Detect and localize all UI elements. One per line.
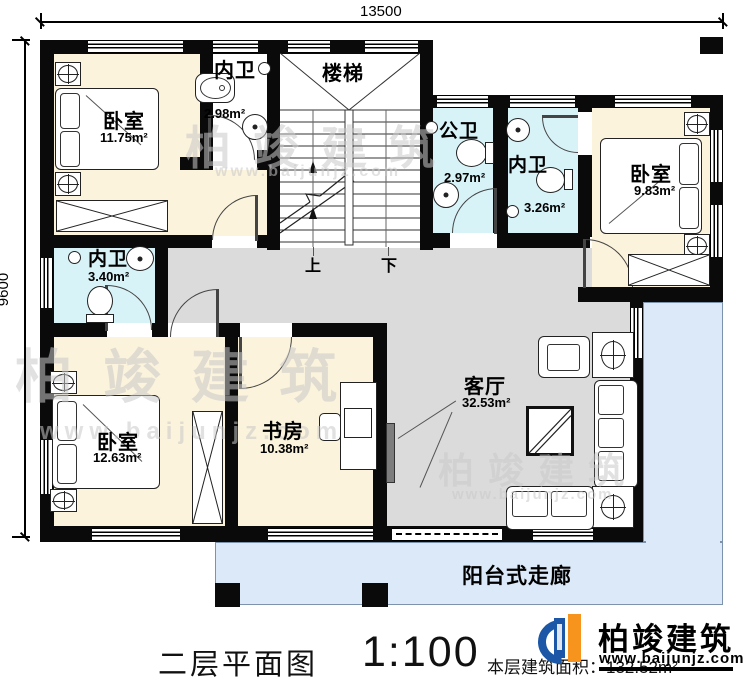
wall-segment xyxy=(152,323,168,337)
logo-underline xyxy=(599,667,733,671)
bath-right-area: 3.26m² xyxy=(524,200,565,215)
window xyxy=(510,95,575,108)
window xyxy=(40,258,53,308)
wall-segment xyxy=(497,233,590,248)
window xyxy=(615,95,691,108)
bedroom-tl-door xyxy=(255,195,258,241)
wall-segment xyxy=(578,95,592,112)
wall-segment xyxy=(225,323,240,337)
bath-left-area: 3.40m² xyxy=(88,269,129,284)
tv-cabinet xyxy=(386,423,395,483)
wall-segment xyxy=(40,323,107,337)
chair xyxy=(319,413,341,441)
public-bath-door xyxy=(494,188,497,234)
balcony-pillar xyxy=(362,583,388,607)
bath-left-label: 内卫 xyxy=(88,244,128,271)
nightstand xyxy=(55,172,81,196)
nightstand xyxy=(50,371,77,394)
dimension-ext xyxy=(722,13,724,29)
window xyxy=(92,528,180,541)
wardrobe xyxy=(192,411,223,524)
side-table xyxy=(592,486,634,528)
logo-url: www.baijunjz.com xyxy=(599,650,744,667)
bedroom-tl-area: 11.75m² xyxy=(100,130,148,145)
armchair xyxy=(538,336,590,378)
toilet-icon xyxy=(86,286,114,324)
stairs-label: 楼梯 xyxy=(322,57,364,86)
side-table xyxy=(592,332,634,378)
coffee-table xyxy=(526,406,574,456)
sliding-door xyxy=(392,528,502,541)
dimension-ext xyxy=(12,536,30,538)
window xyxy=(268,528,373,541)
living-area: 32.53m² xyxy=(462,395,510,410)
window xyxy=(365,40,418,53)
monitor xyxy=(344,408,372,438)
wardrobe xyxy=(628,254,710,286)
window xyxy=(710,130,723,182)
public-bath-label: 公卫 xyxy=(439,116,479,143)
window xyxy=(288,40,330,53)
sofa-three-seat xyxy=(594,380,638,488)
wall-segment xyxy=(578,287,723,302)
nightstand xyxy=(684,112,710,136)
dimension-top-value: 13500 xyxy=(360,3,402,20)
bedroom-bl-door xyxy=(216,289,219,337)
study-area: 10.38m² xyxy=(260,441,308,456)
sink-icon xyxy=(506,118,530,142)
nightstand xyxy=(55,62,81,86)
balcony-label: 阳台式走廊 xyxy=(462,560,572,590)
balcony-seam xyxy=(646,540,720,546)
dimension-ext xyxy=(12,39,30,41)
wall-segment xyxy=(578,155,592,237)
leader-dot xyxy=(68,251,81,264)
floor-plan: 柏竣建筑 www.baijunjz.com 柏竣建筑 www.baijunjz.… xyxy=(0,0,750,684)
study-label: 书房 xyxy=(262,415,304,444)
balcony-right xyxy=(643,302,723,542)
bath-tl-area: 2.98m² xyxy=(204,106,245,121)
stair-up-label: 上 xyxy=(305,252,322,276)
wall-segment xyxy=(433,233,450,248)
bath-tl-door xyxy=(208,115,211,161)
dimension-line-left xyxy=(24,40,26,537)
dimension-line-top xyxy=(40,21,723,23)
bath-right-label: 内卫 xyxy=(508,150,548,177)
sink-icon xyxy=(242,114,268,140)
window xyxy=(88,40,183,53)
logo-building-icon xyxy=(538,612,596,668)
public-bath-area: 2.97m² xyxy=(444,170,485,185)
bedroom-r-area: 9.83m² xyxy=(634,183,675,198)
stair-down-label: 下 xyxy=(381,252,398,276)
bath-right-door xyxy=(542,115,578,118)
leader-dot xyxy=(506,205,519,218)
dimension-ext xyxy=(40,13,42,29)
sink-icon xyxy=(126,246,154,271)
leader-dot xyxy=(258,62,271,75)
dimension-left-value: 9600 xyxy=(0,273,12,306)
bath-tl-label: 内卫 xyxy=(214,54,256,83)
wall-segment xyxy=(700,37,723,54)
plan-scale: 1:100 xyxy=(362,628,480,677)
study-door xyxy=(239,337,242,389)
balcony-pillar xyxy=(215,583,240,607)
window xyxy=(437,95,488,108)
wall-segment xyxy=(257,235,267,248)
leader-dot xyxy=(425,121,438,134)
wall-segment xyxy=(710,95,723,302)
plan-title: 二层平面图 xyxy=(158,641,318,683)
bedroom-r-door xyxy=(583,239,586,288)
wall-segment xyxy=(225,337,238,527)
nightstand xyxy=(50,489,77,512)
bedroom-bl-area: 12.63m² xyxy=(93,450,141,465)
window xyxy=(710,205,723,257)
window xyxy=(213,40,258,53)
sink-icon xyxy=(433,182,459,208)
sofa-two-seat xyxy=(506,486,594,530)
wardrobe xyxy=(56,200,168,232)
